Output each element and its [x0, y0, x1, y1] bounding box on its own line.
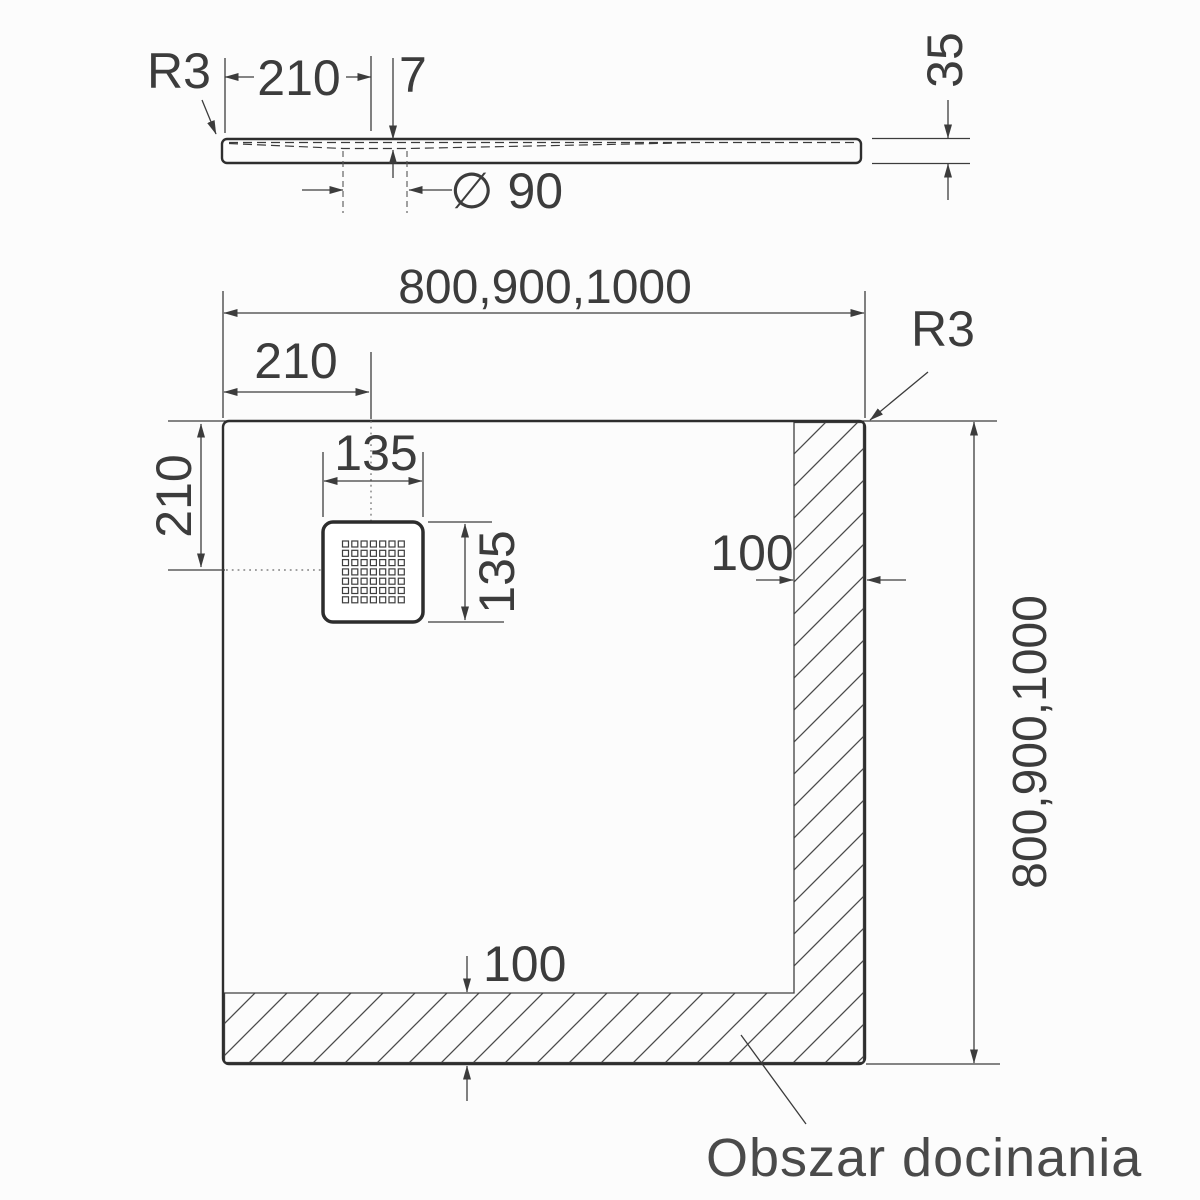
r3-leader-line-plan: [870, 372, 928, 420]
r3-leader-line: [202, 100, 216, 134]
dim-length-label: 800,900,1000: [1004, 595, 1057, 889]
floor-slope-dashed-line: [229, 143, 690, 149]
drain-grate: [323, 522, 423, 622]
side-view: R3 210 7 ∅ 90 35: [147, 32, 973, 219]
technical-drawing-page: R3 210 7 ∅ 90 35: [0, 0, 1200, 1200]
dim-210-left-label: 210: [146, 454, 202, 537]
plan-view: 800,900,1000 R3 210 210 135 135 100 100: [146, 261, 1142, 1188]
radius-label-plan: R3: [911, 301, 975, 357]
dim-diameter-label: ∅ 90: [450, 163, 563, 219]
shower-tray-technical-drawing: R3 210 7 ∅ 90 35: [0, 0, 1200, 1200]
radius-label: R3: [147, 43, 211, 99]
dim-width-label: 800,900,1000: [398, 261, 692, 314]
dim-7-label: 7: [399, 47, 427, 103]
dim-135-width-label: 135: [334, 425, 417, 481]
dim-135-height-label: 135: [469, 530, 525, 613]
dim-210-side-label: 210: [257, 50, 340, 106]
dim-100-right-label: 100: [710, 525, 793, 581]
dim-100-bottom-label: 100: [483, 936, 566, 992]
dim-35-label: 35: [917, 32, 973, 88]
trim-area-label: Obszar docinania: [706, 1128, 1142, 1188]
dim-210-top-label: 210: [254, 333, 337, 389]
